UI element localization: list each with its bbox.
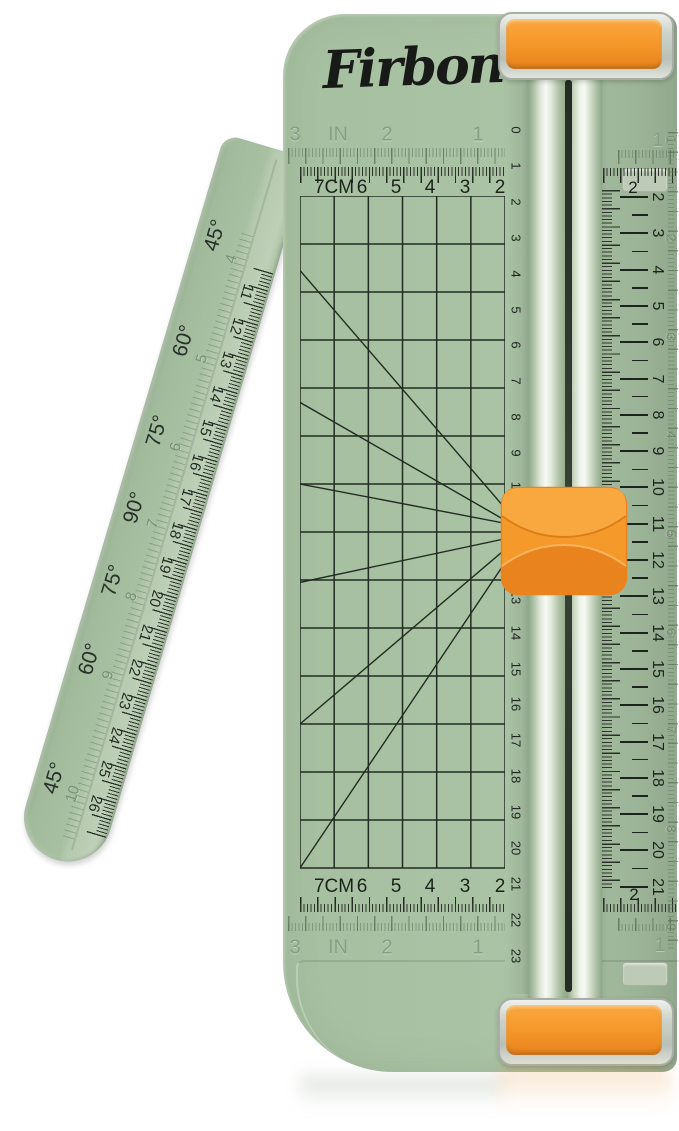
- arm-crease-line: [71, 159, 277, 850]
- inch-row-top-label: 3: [289, 124, 300, 147]
- right-cm-scale-line: [620, 886, 648, 888]
- cm-row-top-label: 3: [460, 177, 471, 199]
- top-end-cap-orange: [506, 19, 662, 69]
- cm-row-top-right-label: 2: [628, 178, 637, 198]
- right-cm-scale-number: 13: [648, 587, 666, 605]
- right-inch-scale-number: 2: [664, 235, 679, 242]
- inch-row-bottom-right-label: 1: [655, 935, 666, 957]
- right-cm-scale-halfline: [632, 868, 648, 870]
- body-reflection: [300, 1076, 500, 1106]
- rail-left-scale-number: 1: [509, 162, 524, 169]
- right-inch-scale-number: 6: [664, 628, 679, 635]
- right-cm-scale-halfline: [632, 832, 648, 834]
- right-cm-scale-line: [620, 269, 648, 271]
- rail-left-scale-number: 22: [509, 913, 524, 927]
- rail-left-scale-number: 8: [509, 414, 524, 421]
- inch-row-bottom-label: IN: [328, 937, 348, 960]
- right-cm-scale-number: 7: [648, 374, 666, 383]
- right-cm-scale-line: [620, 668, 648, 670]
- right-cm-scale-line: [620, 450, 648, 452]
- right-inch-scale-number: 4: [664, 432, 679, 439]
- bottom-inch-ticks: [288, 916, 505, 931]
- bottom-cm-ticks: [300, 897, 505, 912]
- inch-row-top-label: 1: [472, 124, 483, 147]
- cap-reflection: [496, 1066, 672, 1110]
- cm-row-bottom-right-label: 2: [629, 885, 638, 905]
- inch-row-bottom-label: 3: [289, 937, 300, 960]
- top-inch-ticks: [288, 148, 505, 164]
- right-cm-scale-number: 18: [648, 769, 666, 787]
- right-cm-scale-halfline: [632, 214, 648, 216]
- right-cm-scale-number: 2: [648, 193, 666, 202]
- right-cm-scale-halfline: [632, 723, 648, 725]
- right-inch-scale-number: 3: [664, 333, 679, 340]
- right-inch-scale-number: 9: [664, 924, 679, 931]
- right-cm-scale-halfline: [632, 323, 648, 325]
- right-cm-scale-number: 16: [648, 696, 666, 714]
- cm-row-bottom-label: 2: [495, 876, 506, 898]
- right-cm-scale-halfline: [632, 396, 648, 398]
- right-cm-scale-line: [620, 341, 648, 343]
- right-cm-scale-line: [620, 741, 648, 743]
- right-cm-scale-line: [620, 704, 648, 706]
- right-cm-scale-number: 12: [648, 551, 666, 569]
- product-photo-paper-trimmer: 45°60°75°90°75°60°45°4567891011121314151…: [0, 0, 679, 1131]
- bottom-cm-ticks-right: [603, 898, 676, 912]
- right-cm-scale-line: [620, 632, 648, 634]
- right-cm-scale-line: [620, 414, 648, 416]
- cm-row-bottom-label: 5: [391, 876, 402, 898]
- inch-row-top-right-label: 1: [653, 130, 664, 152]
- rail-left-scale-number: 3: [509, 234, 524, 241]
- arm-angle-label: 45°: [199, 217, 231, 254]
- rail-left-scale-number: 20: [509, 841, 524, 855]
- right-cm-scale-halfline: [632, 614, 648, 616]
- right-cm-scale-number: 21: [648, 878, 666, 896]
- brand-logo: Firbon: [317, 27, 509, 108]
- right-cm-scale-halfline: [632, 795, 648, 797]
- right-cm-scale-line: [620, 305, 648, 307]
- rail-left-scale-number: 6: [509, 342, 524, 349]
- right-cm-scale-halfline: [632, 287, 648, 289]
- cm-row-top-label: 2: [495, 177, 506, 199]
- right-cm-scale-halfline: [632, 577, 648, 579]
- rail-clip-bottom: [622, 962, 668, 986]
- right-cm-scale-halfline: [632, 759, 648, 761]
- rail-left-scale-number: 15: [509, 661, 524, 675]
- right-inch-scale-number: 7: [664, 727, 679, 734]
- arm-embossed-inch-ticks: [62, 233, 252, 840]
- right-cm-scale-halfline: [632, 505, 648, 507]
- right-cm-scale-number: 4: [648, 265, 666, 274]
- right-cm-scale-number: 8: [648, 410, 666, 419]
- rail-left-scale-number: 0: [509, 126, 524, 133]
- rail-left-scale-number: 5: [509, 306, 524, 313]
- right-cm-scale-halfline: [632, 360, 648, 362]
- rail-left-scale-number: 16: [509, 697, 524, 711]
- cm-row-top-label: 7CM: [314, 177, 354, 199]
- cm-row-top-label: 4: [425, 177, 436, 199]
- right-cm-scale-halfline: [632, 432, 648, 434]
- right-cm-scale-halfline: [632, 686, 648, 688]
- right-cm-scale-number: 9: [648, 447, 666, 456]
- rail-left-scale-number: 18: [509, 769, 524, 783]
- rail-left-scale-number: 17: [509, 733, 524, 747]
- top-cm-ticks-right: [603, 168, 676, 183]
- right-cm-scale-number: 5: [648, 301, 666, 310]
- inch-row-top-label: IN: [328, 124, 348, 147]
- right-cm-scale-line: [620, 196, 648, 198]
- right-cm-scale-halfline: [632, 541, 648, 543]
- rail-left-scale-number: 19: [509, 805, 524, 819]
- right-cm-scale-halfline: [632, 251, 648, 253]
- inch-row-top-label: 2: [381, 124, 392, 147]
- right-cm-scale-line: [620, 849, 648, 851]
- rail-left-scale-number: 21: [509, 877, 524, 891]
- right-cm-scale-number: 19: [648, 805, 666, 823]
- rail-left-scale-number: 14: [509, 625, 524, 639]
- right-cm-scale-number: 20: [648, 841, 666, 859]
- right-inch-scale-number: 8: [664, 825, 679, 832]
- inch-row-bottom-label: 1: [472, 937, 483, 960]
- right-cm-scale-line: [620, 232, 648, 234]
- slider-cutting-head[interactable]: [500, 486, 628, 596]
- cm-row-bottom-label: 6: [357, 876, 368, 898]
- rail-left-scale-number: 2: [509, 198, 524, 205]
- cm-row-bottom-label: 4: [425, 876, 436, 898]
- right-inch-scale-number: 1: [664, 136, 679, 143]
- right-cm-scale-line: [620, 813, 648, 815]
- right-cm-scale-halfline: [632, 469, 648, 471]
- rail-left-scale-number: 7: [509, 378, 524, 385]
- cm-row-top-label: 5: [391, 177, 402, 199]
- right-cm-scale-line: [620, 777, 648, 779]
- rail-left-scale-number: 23: [509, 948, 524, 962]
- right-cm-scale-halfline: [632, 650, 648, 652]
- right-cm-scale-number: 10: [648, 478, 666, 496]
- right-cm-scale-number: 15: [648, 660, 666, 678]
- cm-row-bottom-label: 7CM: [314, 876, 354, 898]
- bottom-end-cap-orange: [506, 1005, 662, 1055]
- right-cm-scale-number: 17: [648, 733, 666, 751]
- swing-out-arm[interactable]: 45°60°75°90°75°60°45°4567891011121314151…: [13, 134, 309, 872]
- rail-left-scale-number: 4: [509, 270, 524, 277]
- cutting-grid: [300, 196, 528, 869]
- rail-left-scale-number: 9: [509, 449, 524, 456]
- right-inch-scale-number: 5: [664, 530, 679, 537]
- cm-row-bottom-label: 3: [460, 876, 471, 898]
- inch-row-bottom-label: 2: [381, 937, 392, 960]
- right-cm-scale-line: [620, 378, 648, 380]
- cm-row-top-label: 6: [357, 177, 368, 199]
